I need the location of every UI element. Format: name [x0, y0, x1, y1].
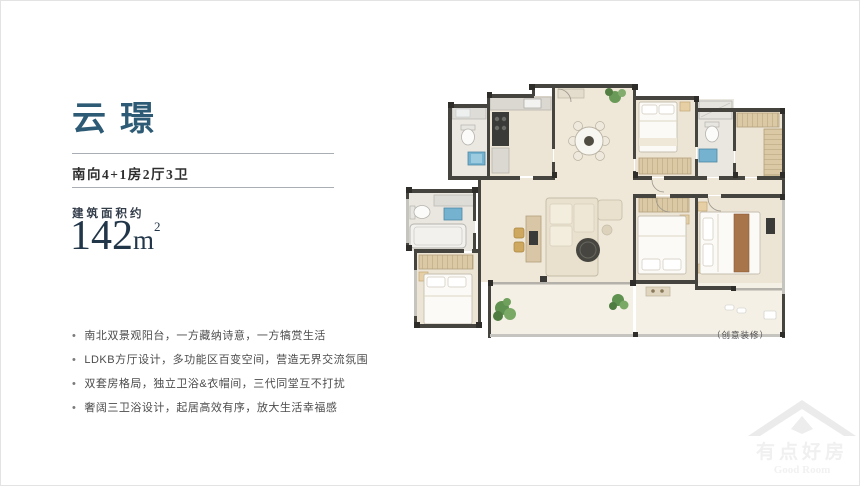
layout-subtitle: 南向4+1房2厅3卫	[72, 163, 189, 183]
divider-line-bottom	[72, 187, 334, 188]
feature-item: •南北双景观阳台，一方藏纳诗意，一方犒赏生活	[72, 331, 368, 342]
watermark: 有点好房 Good Room	[744, 400, 860, 484]
bed-runner	[734, 214, 749, 272]
area-unit-power: 2	[154, 219, 161, 234]
bullet-icon: •	[72, 355, 76, 366]
bench-icon	[646, 287, 670, 296]
bullet-icon: •	[72, 403, 76, 414]
house-diamond-icon	[791, 416, 813, 434]
feature-item: •双套房格局，独立卫浴&衣帽间，三代同堂互不打扰	[72, 379, 368, 390]
bullet-icon: •	[72, 379, 76, 390]
watermark-en-text: Good Room	[774, 464, 831, 476]
floor-plan-drawing	[392, 84, 812, 346]
bathtub-icon	[410, 224, 466, 248]
area-number: 142	[70, 213, 133, 259]
wardrobe-icon	[639, 198, 689, 212]
tv-icon	[766, 218, 775, 234]
wardrobe-icon	[737, 113, 779, 127]
tv-icon	[529, 231, 538, 245]
feature-text: LDKB方厅设计，多功能区百变空间，营造无界交流氛围	[84, 355, 368, 366]
watermark-graphic: 有点好房 Good Room	[744, 400, 860, 484]
brochure-page: { "page": { "title": "云璟", "subtitle": "…	[0, 0, 860, 486]
chair-icon	[514, 242, 524, 252]
nightstand-icon	[680, 102, 690, 111]
fridge-icon	[492, 148, 509, 173]
floor-plan	[392, 84, 812, 346]
bullet-icon: •	[72, 331, 76, 342]
area-unit: m	[133, 225, 154, 255]
feature-list: •南北双景观阳台，一方藏纳诗意，一方犒赏生活 •LDKB方厅设计，多功能区百变空…	[72, 331, 368, 427]
plan-caption: （创意装修）	[712, 329, 769, 341]
feature-text: 南北双景观阳台，一方藏纳诗意，一方犒赏生活	[84, 331, 326, 342]
area-value: 142m2	[70, 215, 161, 257]
chair-icon	[514, 228, 524, 238]
wardrobe-icon	[764, 129, 783, 176]
feature-text: 奢阔三卫浴设计，起居高效有序，放大生活幸福感	[84, 403, 337, 414]
washbasin-icon	[699, 149, 717, 162]
armchair-icon	[598, 200, 622, 220]
entry-cabinet	[558, 89, 584, 98]
bedroom-3	[419, 255, 473, 324]
feature-item: •奢阔三卫浴设计，起居高效有序，放大生活幸福感	[72, 403, 368, 414]
feature-item: •LDKB方厅设计，多功能区百变空间，营造无界交流氛围	[72, 355, 368, 366]
wardrobe-icon	[419, 255, 473, 269]
wardrobe-icon	[639, 158, 691, 174]
feature-text: 双套房格局，独立卫浴&衣帽间，三代同堂互不打扰	[84, 379, 345, 390]
stove-icon	[492, 112, 509, 146]
sink-icon	[524, 99, 541, 108]
washbasin-icon	[444, 208, 462, 220]
page-title: 云璟	[72, 100, 168, 141]
watermark-cn-text: 有点好房	[756, 440, 848, 463]
divider-line-top	[72, 153, 334, 154]
nightstand-icon	[698, 202, 707, 211]
slippers-icon	[725, 305, 734, 310]
